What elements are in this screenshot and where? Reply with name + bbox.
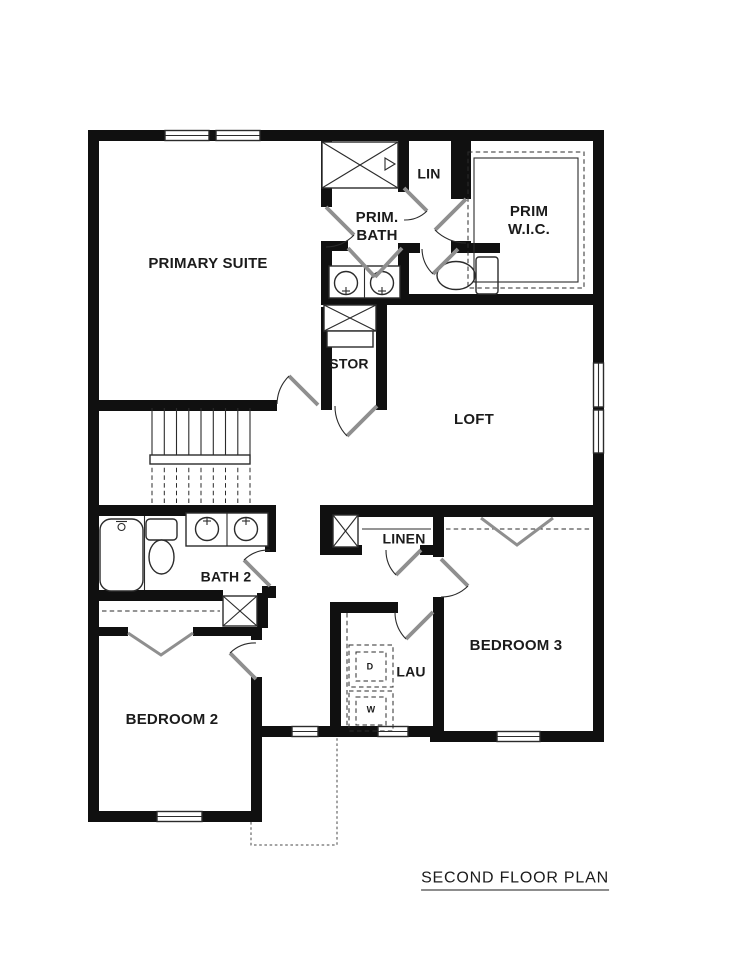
dryer-label: D bbox=[367, 662, 374, 673]
door-swing-wic bbox=[435, 199, 466, 243]
room-label-linen: LINEN bbox=[383, 531, 426, 548]
chase-icon bbox=[324, 305, 376, 331]
bifold-door-bedroom2-closet bbox=[128, 633, 193, 655]
room-label-prim-bath: PRIM. BATH bbox=[346, 209, 408, 245]
door-swing-laundry bbox=[395, 612, 433, 639]
chase-icon bbox=[223, 596, 257, 626]
stair-rail bbox=[150, 455, 250, 464]
storage-shelf bbox=[327, 331, 373, 347]
lower-roof-outline bbox=[251, 738, 337, 845]
stairs-icon bbox=[150, 408, 250, 505]
room-label-stor: STOR bbox=[329, 356, 368, 373]
window-icon bbox=[292, 727, 318, 737]
double-sink-icon bbox=[186, 513, 268, 546]
window-icon bbox=[165, 131, 209, 141]
room-label-prim-wic: PRIM W.I.C. bbox=[496, 203, 562, 239]
room-label-lin: LIN bbox=[417, 166, 440, 183]
chase-icon bbox=[333, 515, 358, 547]
toilet-icon bbox=[146, 519, 177, 574]
bifold-door-bedroom3-closet bbox=[481, 518, 553, 545]
room-label-bedroom2: BEDROOM 2 bbox=[126, 711, 219, 729]
window-icon bbox=[497, 732, 540, 742]
window-icon bbox=[594, 410, 604, 453]
door-swing-primary-suite bbox=[277, 376, 318, 405]
floor-plan: PRIMARY SUITE PRIM. BATH LIN PRIM W.I.C.… bbox=[0, 0, 751, 971]
room-label-bedroom3: BEDROOM 3 bbox=[470, 637, 563, 655]
floor-plan-drawing bbox=[0, 0, 751, 971]
bathtub-icon bbox=[100, 519, 143, 591]
washer-label: W bbox=[367, 705, 376, 716]
double-sink-icon bbox=[329, 266, 400, 298]
door-swing-linen bbox=[386, 550, 421, 575]
door-swing-storage bbox=[335, 406, 377, 436]
door-swing-bedroom3 bbox=[441, 559, 468, 597]
window-icon bbox=[594, 363, 604, 407]
room-label-primary-suite: PRIMARY SUITE bbox=[148, 255, 267, 273]
shower-icon bbox=[322, 142, 398, 188]
room-label-loft: LOFT bbox=[454, 411, 494, 429]
door-swing-bedroom2 bbox=[230, 643, 256, 679]
window-icon bbox=[157, 812, 202, 822]
room-label-bath2: BATH 2 bbox=[201, 569, 252, 586]
room-label-laundry: LAU bbox=[396, 664, 425, 681]
window-icon bbox=[216, 131, 260, 141]
plan-title: SECOND FLOOR PLAN bbox=[421, 870, 609, 891]
